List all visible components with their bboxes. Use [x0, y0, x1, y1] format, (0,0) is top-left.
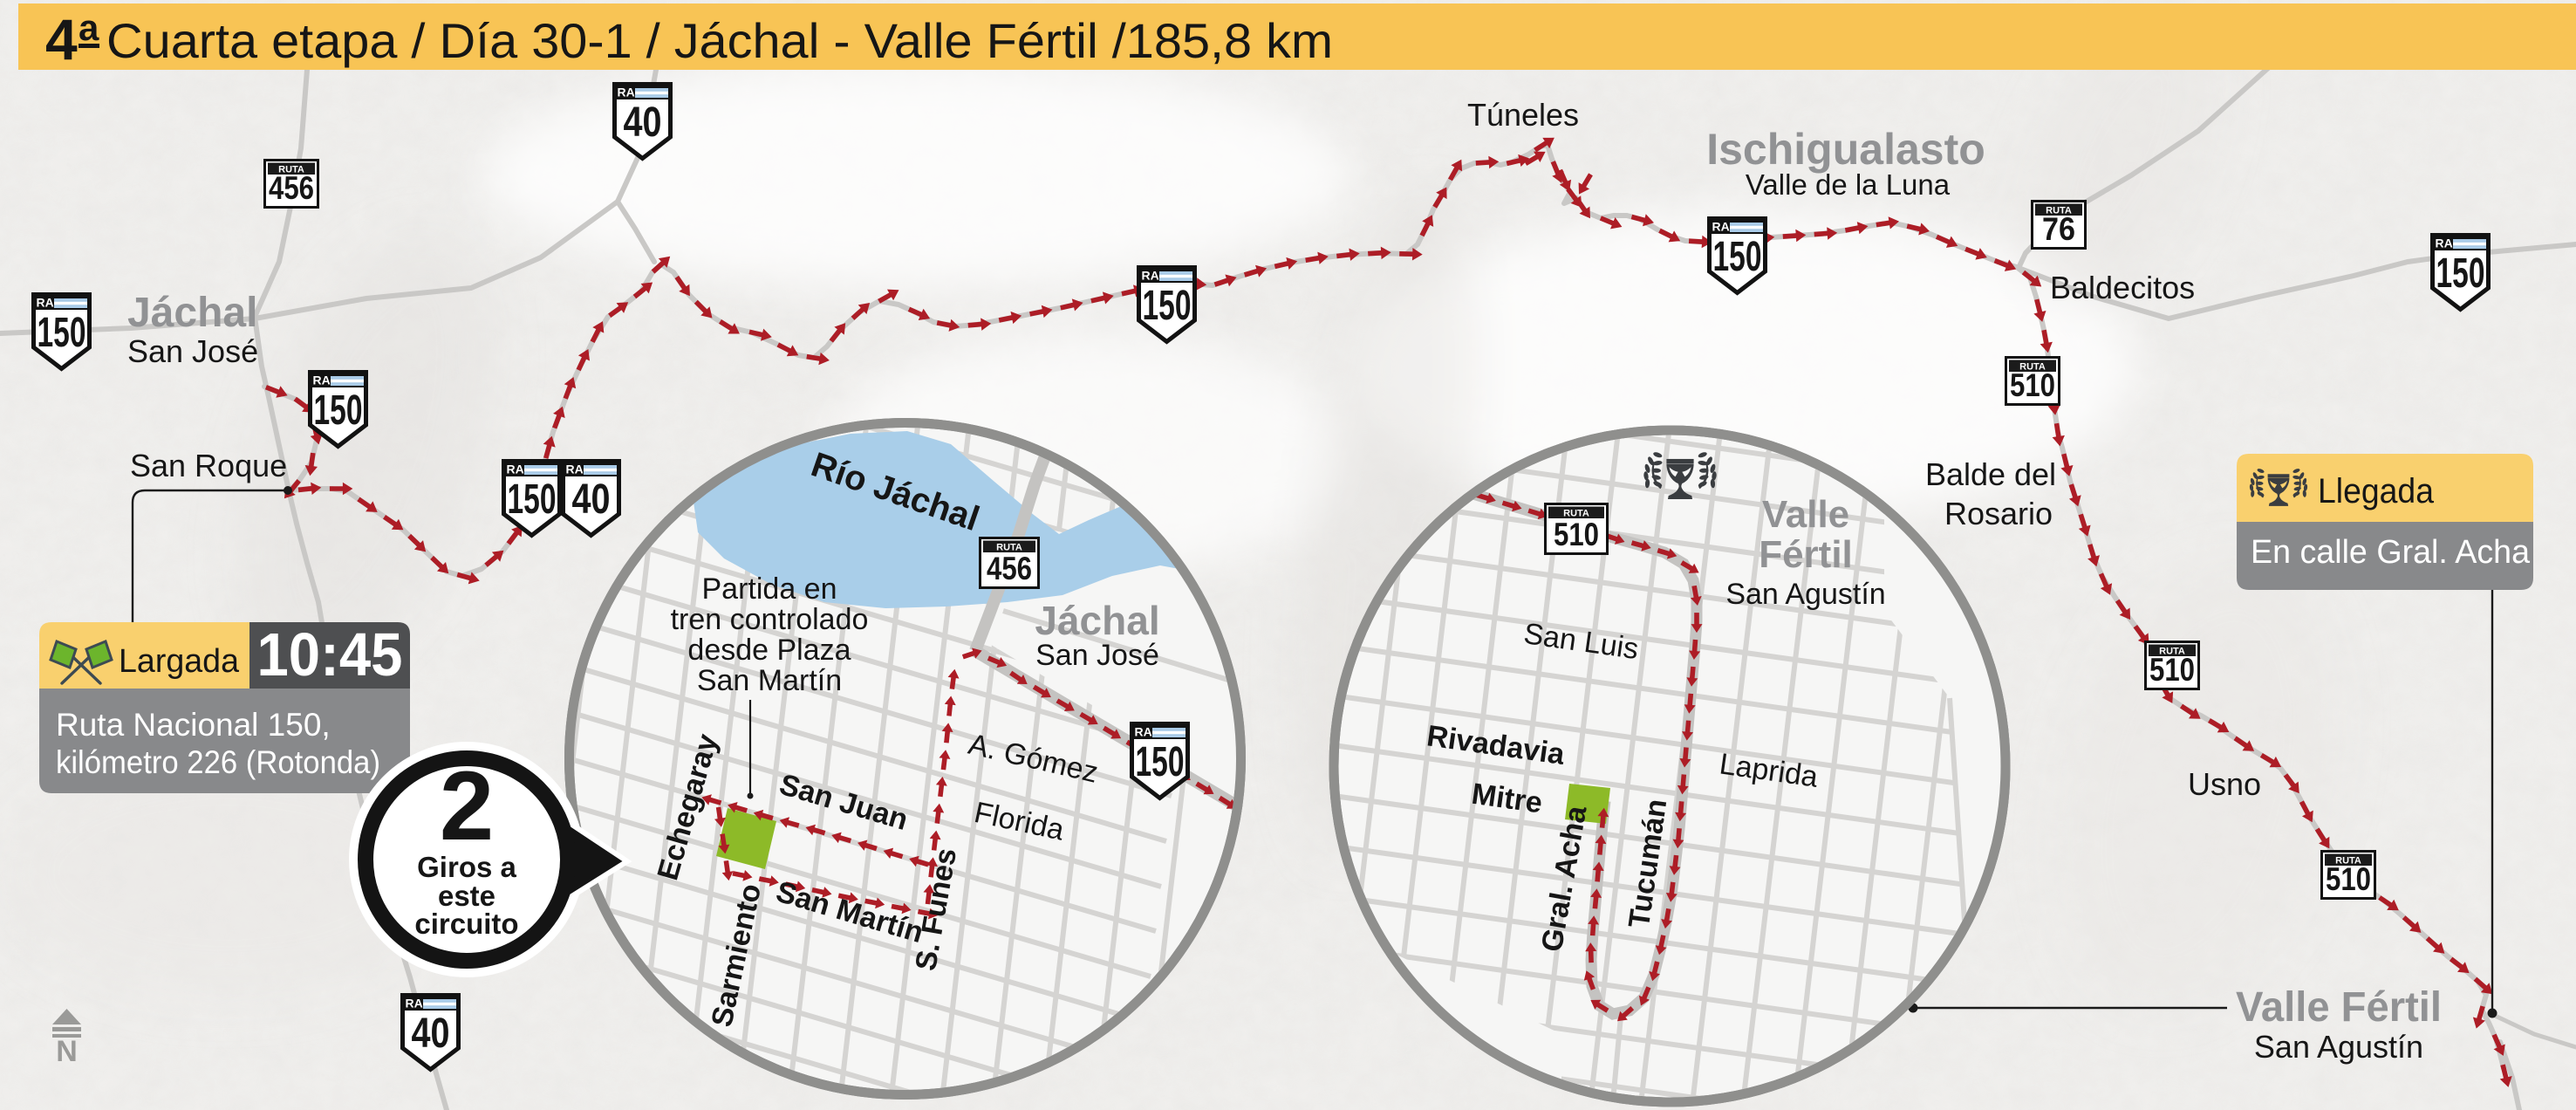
svg-text:RA: RA [406, 997, 423, 1011]
svg-text:150: 150 [1713, 234, 1762, 280]
svg-text:a: a [79, 7, 99, 48]
svg-text:San Agustín: San Agustín [1725, 578, 1885, 611]
svg-text:San Martín: San Martín [697, 664, 842, 697]
svg-text:510: 510 [1554, 517, 1599, 552]
svg-text:40: 40 [572, 476, 611, 523]
svg-text:510: 510 [2326, 861, 2371, 897]
svg-text:RA: RA [37, 296, 54, 310]
svg-text:San Roque: San Roque [130, 448, 287, 483]
svg-text:Jáchal: Jáchal [127, 290, 257, 336]
svg-text:150: 150 [38, 310, 86, 356]
svg-text:510: 510 [2010, 367, 2055, 403]
svg-text:desde Plaza: desde Plaza [687, 634, 851, 667]
svg-text:76: 76 [2042, 211, 2075, 247]
svg-text:456: 456 [987, 551, 1032, 586]
svg-text:RA: RA [566, 462, 584, 476]
svg-text:RA: RA [1142, 269, 1159, 283]
svg-text:kilómetro 226 (Rotonda): kilómetro 226 (Rotonda) [56, 744, 380, 780]
svg-text:Túneles: Túneles [1467, 97, 1579, 133]
svg-text:Partida en: Partida en [702, 572, 837, 606]
svg-text:Balde del: Balde del [1925, 456, 2056, 492]
svg-text:Valle: Valle [1762, 493, 1849, 536]
svg-text:Usno: Usno [2188, 766, 2261, 802]
svg-text:150: 150 [314, 387, 363, 434]
svg-text:RA: RA [2436, 236, 2453, 250]
svg-text:N: N [56, 1035, 78, 1068]
svg-text:San José: San José [127, 333, 258, 369]
svg-text:456: 456 [269, 170, 314, 206]
svg-text:150: 150 [2436, 250, 2485, 297]
svg-text:tren controlado: tren controlado [671, 603, 869, 636]
svg-text:Giros a: Giros a [417, 851, 516, 883]
svg-text:RA: RA [507, 462, 524, 476]
svg-text:10:45: 10:45 [257, 620, 403, 689]
svg-text:Ruta Nacional 150,: Ruta Nacional 150, [56, 707, 331, 743]
svg-text:Rosario: Rosario [1944, 496, 2053, 531]
svg-text:150: 150 [1136, 739, 1185, 785]
svg-text:Valle de la Luna: Valle de la Luna [1746, 168, 1951, 201]
svg-text:Llegada: Llegada [2318, 472, 2435, 510]
svg-text:40: 40 [412, 1011, 450, 1057]
svg-text:150: 150 [508, 476, 557, 523]
svg-text:En calle Gral. Acha: En calle Gral. Acha [2251, 534, 2531, 571]
svg-text:San Agustín: San Agustín [2254, 1029, 2423, 1065]
svg-text:150: 150 [1143, 283, 1192, 329]
svg-text:Cuarta etapa / Día 30-1 / Jách: Cuarta etapa / Día 30-1 / Jáchal - Valle… [106, 13, 1333, 68]
svg-text:Largada: Largada [119, 643, 240, 680]
svg-text:Valle Fértil: Valle Fértil [2236, 984, 2442, 1031]
svg-text:San José: San José [1035, 639, 1159, 672]
svg-text:510: 510 [2149, 652, 2195, 688]
svg-text:RA: RA [1135, 725, 1152, 739]
svg-text:RA: RA [313, 373, 331, 387]
svg-text:RA: RA [1712, 220, 1730, 234]
svg-text:40: 40 [624, 99, 662, 146]
svg-text:4: 4 [45, 7, 78, 72]
svg-text:Jáchal: Jáchal [1035, 598, 1159, 643]
svg-text:Baldecitos: Baldecitos [2050, 270, 2195, 305]
svg-text:circuito: circuito [414, 908, 518, 940]
svg-text:2: 2 [440, 751, 494, 860]
svg-text:Ischigualasto: Ischigualasto [1706, 125, 1985, 174]
svg-text:RA: RA [618, 86, 635, 99]
svg-text:Fértil: Fértil [1759, 533, 1853, 576]
